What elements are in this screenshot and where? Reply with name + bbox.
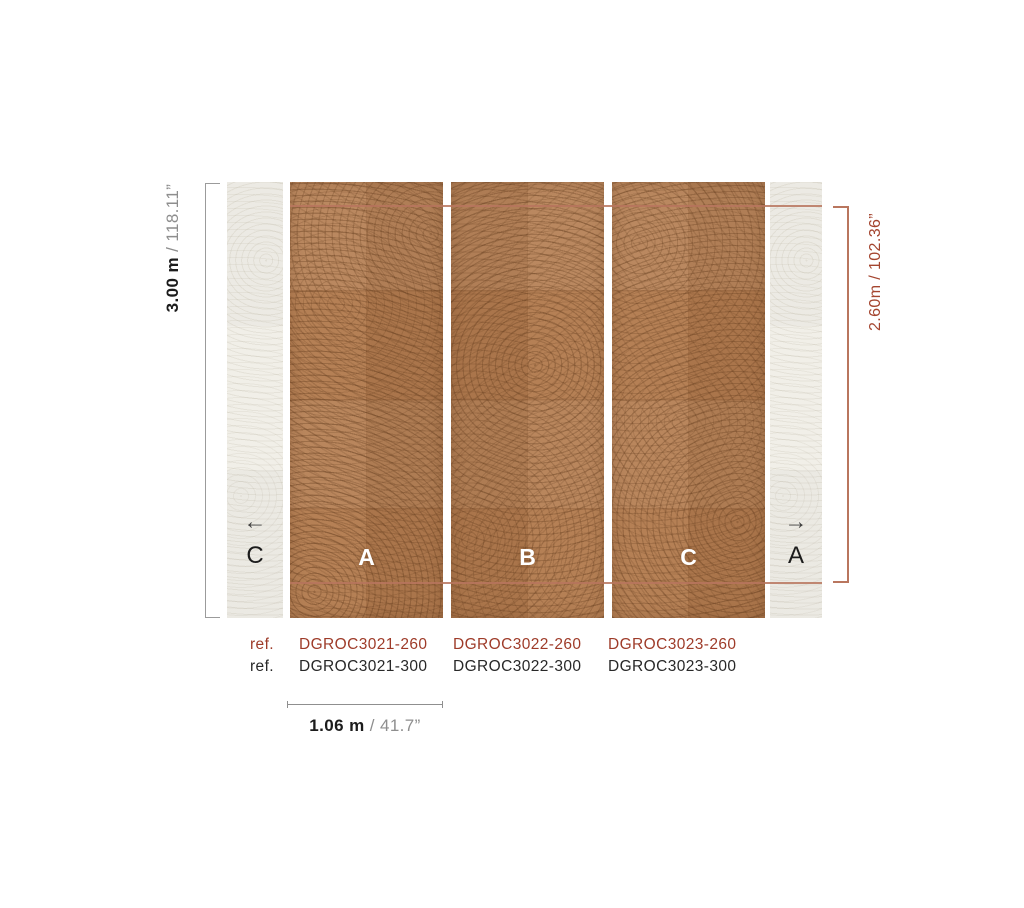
- height-bracket-tick-top: [205, 183, 220, 184]
- panel-repeat-right: → A: [770, 182, 822, 618]
- panel-height-guide-bottom: [290, 582, 822, 584]
- panel-repeat-right-label: A: [770, 542, 822, 570]
- width-measure-tick-left: [287, 701, 288, 708]
- panel-height-bracket-tick-top: [833, 206, 848, 208]
- ref-label-300: ref.: [250, 658, 290, 676]
- panel-b: B: [451, 182, 604, 618]
- panel-repeat-left-label: C: [227, 542, 283, 570]
- panel-c-label: C: [612, 544, 765, 571]
- ref-code-a-260: DGROC3021-260: [299, 636, 449, 654]
- ref-code-c-260: DGROC3023-260: [608, 636, 758, 654]
- height-bracket-tick-bottom: [205, 617, 220, 618]
- panel-height-bracket-line: [847, 206, 849, 583]
- panel-height-dimension: 2.60m / 102.36”: [867, 142, 887, 402]
- ref-code-b-300: DGROC3022-300: [453, 658, 603, 676]
- ref-label-260: ref.: [250, 636, 290, 654]
- panel-b-label: B: [451, 544, 604, 571]
- arrow-left-icon: ←: [227, 510, 283, 533]
- full-height-imperial: / 118.11”: [163, 184, 182, 257]
- panel-a: A: [290, 182, 443, 618]
- panel-height-bracket-tick-bottom: [833, 581, 848, 583]
- ref-code-a-300: DGROC3021-300: [299, 658, 449, 676]
- panel-c: C: [612, 182, 765, 618]
- ref-code-c-300: DGROC3023-300: [608, 658, 758, 676]
- arrow-right-icon: →: [770, 510, 822, 533]
- wallpaper-panels-diagram: 3.00 m / 118.11” ← C A B C → A 2.60m / 1…: [0, 0, 1024, 908]
- full-height-metric: 3.00 m: [163, 257, 182, 312]
- width-imperial: / 41.7”: [365, 716, 421, 735]
- panel-height-guide-top: [290, 205, 822, 207]
- full-height-dimension: 3.00 m / 118.11”: [163, 108, 185, 388]
- ref-code-b-260: DGROC3022-260: [453, 636, 603, 654]
- panel-repeat-left: ← C: [227, 182, 283, 618]
- width-dimension: 1.06 m / 41.7”: [265, 716, 465, 736]
- width-metric: 1.06 m: [309, 716, 364, 735]
- width-measure-line: [287, 704, 443, 705]
- panel-a-label: A: [290, 544, 443, 571]
- height-bracket-line: [205, 183, 206, 618]
- width-measure-tick-right: [442, 701, 443, 708]
